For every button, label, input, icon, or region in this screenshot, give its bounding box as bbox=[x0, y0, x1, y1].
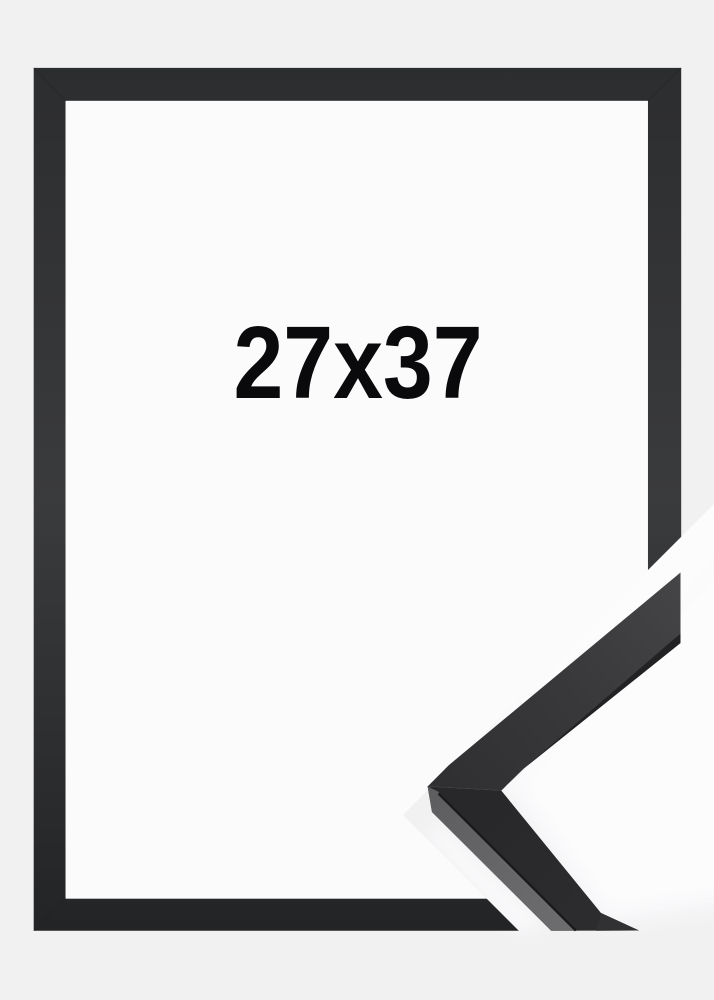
svg-text:27x37: 27x37 bbox=[233, 306, 482, 420]
